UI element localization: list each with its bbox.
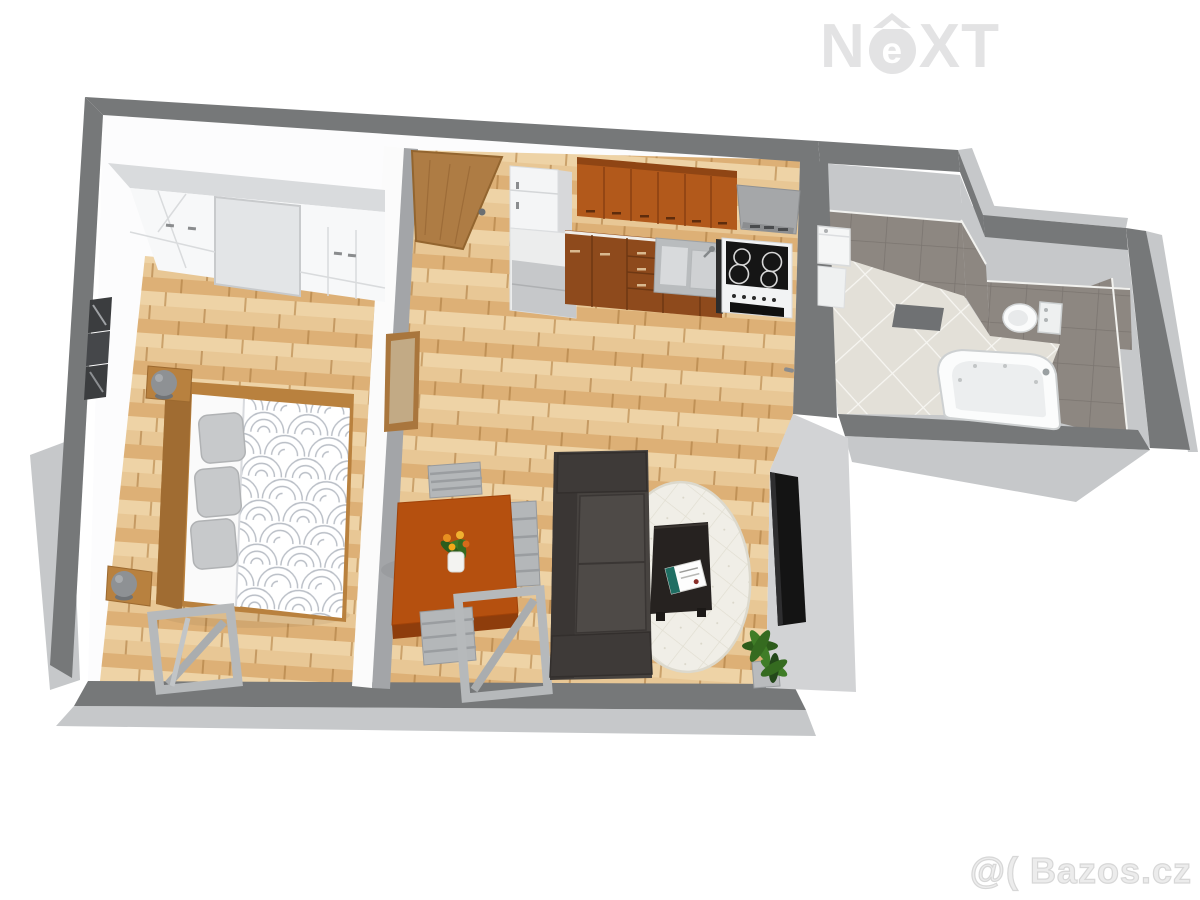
bath-mat bbox=[892, 304, 944, 331]
sofa bbox=[550, 450, 652, 680]
corner-bathtub bbox=[938, 350, 1060, 429]
coffee-table bbox=[650, 522, 712, 621]
range-hood bbox=[737, 185, 800, 234]
brand-letter-n: N bbox=[820, 16, 866, 78]
site-watermark: @( Bazos.cz bbox=[970, 850, 1192, 892]
dining-chair bbox=[428, 462, 482, 498]
stove bbox=[722, 238, 792, 318]
brand-watermark: N e XT bbox=[820, 16, 1000, 78]
brand-e-circle: e bbox=[869, 27, 916, 74]
fridge bbox=[510, 166, 572, 233]
floorplan-render bbox=[0, 0, 1200, 900]
dining-chair bbox=[420, 607, 476, 665]
double-bed bbox=[156, 380, 354, 622]
sink bbox=[654, 238, 726, 298]
wall-mirror bbox=[384, 331, 420, 432]
brand-letters-xt: XT bbox=[919, 16, 1000, 78]
